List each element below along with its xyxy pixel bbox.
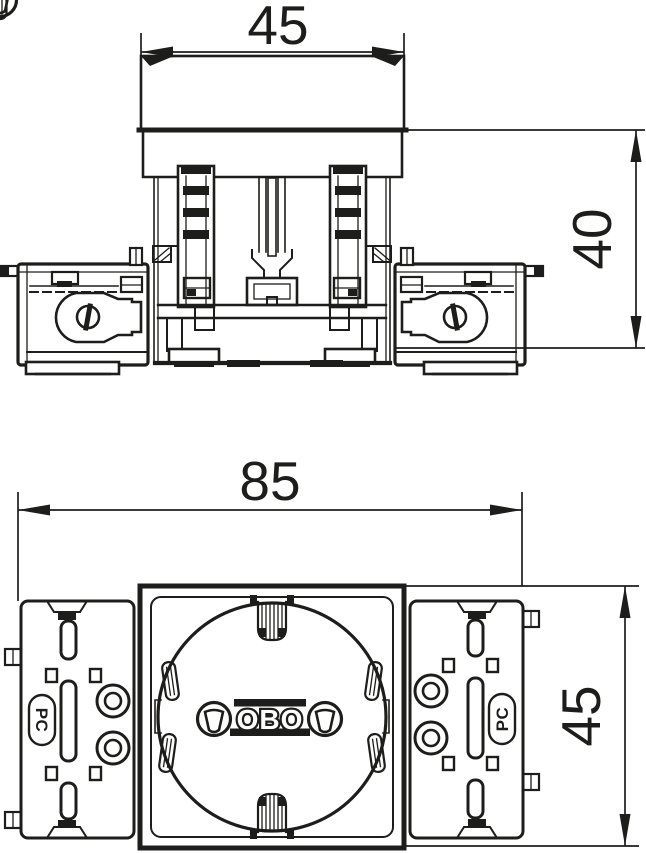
- centre-contact-pin: [247, 178, 297, 305]
- dimension-overall-width: 85: [18, 450, 522, 601]
- corner-bevel-left: [141, 56, 174, 66]
- dimension-label-front-width: 45: [247, 0, 308, 56]
- dimension-label-module-height: 45: [550, 685, 612, 746]
- brand-text: OBO: [237, 704, 304, 735]
- pc-label-right: PC: [493, 707, 512, 732]
- dimension-label-overall-width: 85: [239, 450, 300, 512]
- dimension-front-width: 45: [141, 0, 404, 131]
- arrow-left-icon: [18, 505, 50, 516]
- dimension-label-front-depth: 40: [561, 208, 623, 269]
- arrow-up-icon: [631, 130, 642, 162]
- arrow-right-icon: [490, 505, 522, 516]
- technical-drawing-page: 45 40 85: [0, 0, 646, 853]
- arrow-down-icon: [631, 316, 642, 348]
- hatch-corner-left: [153, 246, 171, 262]
- mounting-mechanism: [153, 166, 391, 367]
- pc-label-left: PC: [32, 708, 51, 733]
- corner-bevel-right: [371, 56, 404, 66]
- socket-module-drawing: 45 40 85: [0, 0, 646, 853]
- front-elevation-view: [0, 56, 543, 374]
- mounting-claw-module: [0, 248, 148, 374]
- plan-view: 85: [0, 0, 639, 848]
- hatch-corner-right: [373, 246, 391, 262]
- obo-logo: OBO: [230, 699, 310, 736]
- arrow-up-icon: [620, 586, 631, 618]
- cover-plate: [141, 56, 404, 130]
- side-module: [410, 601, 539, 838]
- claw-foot: [26, 362, 119, 374]
- arrow-down-icon: [620, 814, 631, 846]
